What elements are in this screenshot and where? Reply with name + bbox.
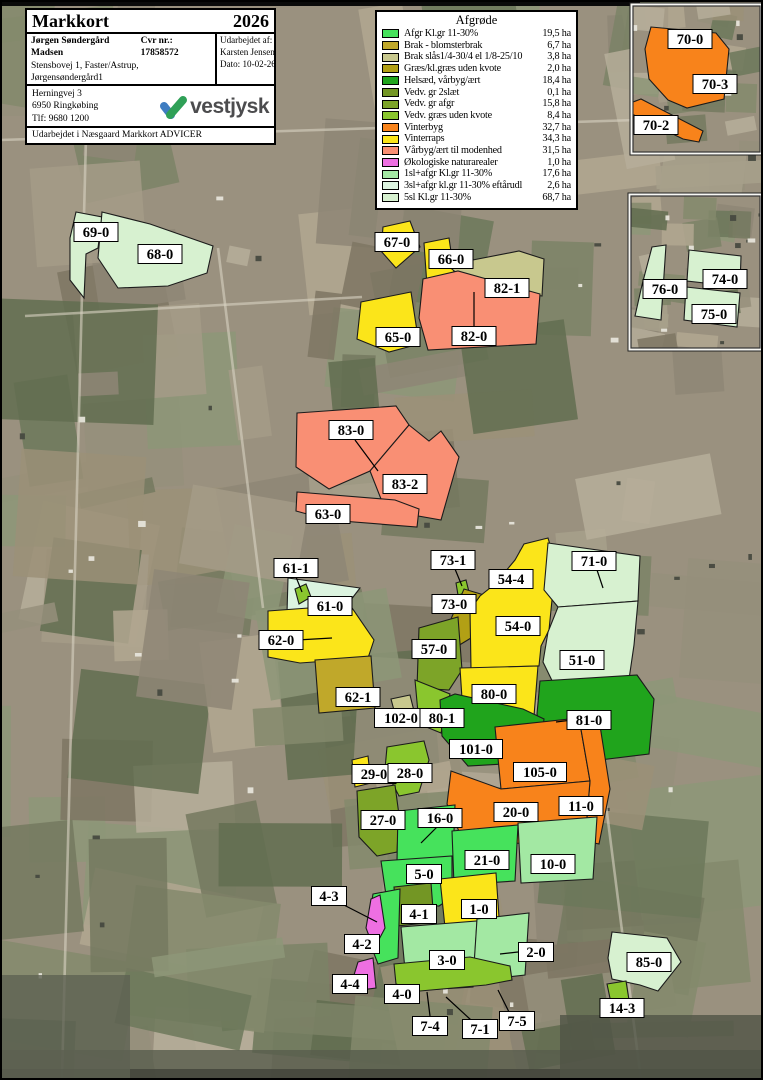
svg-text:61-0: 61-0	[317, 599, 344, 615]
legend-swatch	[382, 146, 399, 155]
svg-text:21-0: 21-0	[474, 853, 501, 869]
svg-text:14-3: 14-3	[609, 1001, 636, 1017]
svg-text:20-0: 20-0	[503, 805, 530, 821]
legend-area: 0,1 ha	[537, 87, 571, 99]
field-label-82-1: 82-1	[485, 279, 529, 298]
aerial-building	[100, 922, 105, 927]
svg-text:83-0: 83-0	[338, 423, 365, 439]
field-label-67-0: 67-0	[375, 233, 419, 252]
svg-text:82-0: 82-0	[461, 329, 488, 345]
svg-text:75-0: 75-0	[701, 307, 728, 323]
legend-label: Helsæd, vårbyg/ært	[404, 75, 537, 87]
field-label-73-0: 73-0	[432, 595, 476, 614]
legend-swatch	[382, 53, 399, 62]
legend-label: 3sl+afgr kl.gr 11-30% eftårudl	[404, 180, 537, 192]
svg-text:1-0: 1-0	[469, 902, 488, 918]
legend-area: 6,7 ha	[537, 40, 571, 52]
field-label-11-0: 11-0	[559, 797, 603, 816]
legend-label: Vinterbyg	[404, 122, 537, 134]
field-label-61-1: 61-1	[274, 559, 318, 578]
aerial-building	[664, 106, 669, 111]
svg-text:7-5: 7-5	[507, 1014, 526, 1030]
prepared-by-name: Karsten Jensen	[220, 47, 271, 59]
field-label-63-0: 63-0	[306, 505, 350, 524]
field-label-3-0: 3-0	[430, 951, 465, 970]
legend-item-sl5: 5sl Kl.gr 11-30%68,7 ha	[382, 192, 571, 204]
svg-text:11-0: 11-0	[568, 799, 594, 815]
inset-map-2: 76-074-075-0	[614, 193, 763, 359]
field-label-16-0: 16-0	[418, 809, 462, 828]
field-label-7-5: 7-5	[500, 1012, 535, 1031]
svg-text:63-0: 63-0	[315, 507, 342, 523]
svg-text:10-0: 10-0	[540, 857, 567, 873]
legend-area: 18,4 ha	[537, 75, 571, 87]
aerial-building	[209, 406, 212, 411]
svg-text:5-0: 5-0	[414, 867, 433, 883]
field-label-4-0: 4-0	[385, 985, 420, 1004]
office-block: Herningvej 3 6950 Ringkøbing Tlf: 9680 1…	[25, 84, 276, 145]
svg-text:83-2: 83-2	[392, 477, 419, 493]
aerial-building	[616, 481, 620, 485]
field-label-82-0: 82-0	[452, 327, 496, 346]
aerial-building	[443, 989, 448, 994]
field-label-73-1: 73-1	[431, 551, 475, 570]
svg-text:54-4: 54-4	[498, 572, 525, 588]
svg-text:71-0: 71-0	[581, 554, 608, 570]
owner-address: Stensbovej 1, Faster/Astrup, Jørgensønde…	[31, 60, 211, 85]
aerial-building	[637, 629, 645, 634]
aerial-building	[665, 215, 669, 220]
field-label-66-0: 66-0	[429, 250, 473, 269]
svg-text:66-0: 66-0	[438, 252, 465, 268]
field-label-70-2: 70-2	[634, 116, 678, 135]
legend-item-oko: Økologiske naturarealer1,0 ha	[382, 157, 571, 169]
aerial-building	[237, 634, 241, 637]
legend-label: Vedv. græs uden kvote	[404, 110, 537, 122]
svg-text:70-3: 70-3	[702, 77, 729, 93]
aerial-dark-area	[0, 975, 130, 1080]
aerial-building	[476, 526, 483, 529]
legend-swatch	[382, 158, 399, 167]
aerial-patch	[0, 820, 84, 948]
legend-area: 8,4 ha	[537, 110, 571, 122]
legend-label: 5sl Kl.gr 11-30%	[404, 192, 537, 204]
field-label-69-0: 69-0	[74, 223, 118, 242]
svg-text:67-0: 67-0	[384, 235, 411, 251]
svg-text:82-1: 82-1	[494, 281, 521, 297]
field-label-51-0: 51-0	[560, 651, 604, 670]
field-label-27-0: 27-0	[361, 811, 405, 830]
legend-item-vinterraps: Vinterraps34,3 ha	[382, 133, 571, 145]
aerial-building	[748, 238, 756, 242]
svg-text:74-0: 74-0	[712, 272, 739, 288]
aerial-building	[447, 1009, 453, 1015]
field-label-7-1: 7-1	[463, 1020, 498, 1039]
svg-text:81-0: 81-0	[576, 713, 603, 729]
legend-item-brak_blomster: Brak - blomsterbrak6,7 ha	[382, 40, 571, 52]
aerial-building	[135, 653, 142, 657]
svg-text:80-0: 80-0	[481, 687, 508, 703]
field-label-4-4: 4-4	[333, 975, 368, 994]
legend-item-sl1: 1sl+afgr Kl.gr 11-30%17,6 ha	[382, 168, 571, 180]
field-label-83-2: 83-2	[383, 475, 427, 494]
svg-text:4-4: 4-4	[340, 977, 359, 993]
legend-area: 17,6 ha	[537, 168, 571, 180]
inset-map-1: 70-070-370-2	[617, 0, 763, 158]
field-label-57-0: 57-0	[412, 640, 456, 659]
office-city: 6950 Ringkøbing	[32, 100, 98, 112]
legend-area: 1,0 ha	[537, 157, 571, 169]
aerial-building	[594, 243, 601, 246]
legend-item-vedv_graes: Vedv. græs uden kvote8,4 ha	[382, 110, 571, 122]
field-label-10-0: 10-0	[531, 855, 575, 874]
legend-area: 31,5 ha	[537, 145, 571, 157]
legend-item-helsaed: Helsæd, vårbyg/ært18,4 ha	[382, 75, 571, 87]
legend-label: Brak slås1/4-30/4 el 1/8-25/10	[404, 51, 537, 63]
field-label-28-0: 28-0	[388, 764, 432, 783]
field-label-83-0: 83-0	[329, 421, 373, 440]
map-year: 2026	[233, 10, 269, 32]
office-address: Herningvej 3 6950 Ringkøbing Tlf: 9680 1…	[32, 88, 98, 125]
field-label-4-2: 4-2	[345, 935, 380, 954]
svg-text:4-3: 4-3	[319, 889, 338, 905]
svg-text:70-0: 70-0	[677, 32, 704, 48]
aerial-building	[424, 523, 430, 528]
vestjysk-logo-text: vestjysk	[190, 93, 269, 120]
legend-item-vaarbyg: Vårbyg/ært til modenhed31,5 ha	[382, 145, 571, 157]
legend-area: 2,6 ha	[537, 180, 571, 192]
aerial-building	[674, 577, 680, 580]
aerial-patch	[136, 569, 250, 710]
prepared-by-label: Udarbejdet af:	[220, 35, 271, 47]
aerial-building	[20, 433, 25, 439]
svg-text:73-0: 73-0	[441, 597, 468, 613]
field-label-2-0: 2-0	[519, 943, 554, 962]
svg-text:85-0: 85-0	[636, 955, 663, 971]
legend-area: 32,7 ha	[537, 122, 571, 134]
field-label-85-0: 85-0	[627, 953, 671, 972]
field-label-80-1: 80-1	[420, 709, 464, 728]
aerial-building	[232, 679, 239, 683]
legend-swatch	[382, 29, 399, 38]
field-label-81-0: 81-0	[567, 711, 611, 730]
aerial-patch	[13, 449, 147, 585]
field-label-105-0: 105-0	[514, 763, 567, 782]
legend-label: Vinterraps	[404, 133, 537, 145]
field-label-70-3: 70-3	[693, 75, 737, 94]
svg-text:16-0: 16-0	[427, 811, 454, 827]
legend-item-afgr: Afgr Kl.gr 11-30%19,5 ha	[382, 28, 571, 40]
aerial-building	[748, 155, 756, 161]
inset-content: 70-070-370-2	[617, 0, 763, 158]
field-label-54-0: 54-0	[496, 617, 540, 636]
svg-text:27-0: 27-0	[370, 813, 397, 829]
field-label-14-3: 14-3	[600, 999, 644, 1018]
aerial-building	[138, 521, 146, 527]
legend-item-vedv2: Vedv. gr 2slæt0,1 ha	[382, 87, 571, 99]
field-label-71-0: 71-0	[572, 552, 616, 571]
svg-text:101-0: 101-0	[459, 742, 493, 758]
office-phone: Tlf: 9680 1200	[32, 113, 98, 125]
aerial-patch	[679, 558, 763, 688]
svg-text:69-0: 69-0	[83, 225, 110, 241]
legend-area: 19,5 ha	[537, 28, 571, 40]
legend-list: Afgr Kl.gr 11-30%19,5 haBrak - blomsterb…	[382, 28, 571, 204]
office-street: Herningvej 3	[32, 88, 98, 100]
legend-swatch	[382, 170, 399, 179]
aerial-patch	[683, 197, 717, 221]
svg-text:61-1: 61-1	[283, 561, 310, 577]
legend-swatch	[382, 193, 399, 202]
field-label-76-0: 76-0	[643, 280, 687, 299]
aerial-building	[89, 556, 95, 561]
aerial-building	[748, 554, 752, 560]
aerial-building	[69, 570, 73, 573]
owner-cvr: Cvr nr.: 17858572	[141, 35, 211, 60]
svg-text:7-1: 7-1	[470, 1022, 489, 1038]
vestjysk-logo-icon	[158, 95, 188, 119]
field-label-65-0: 65-0	[376, 328, 420, 347]
svg-text:4-1: 4-1	[409, 907, 428, 923]
legend-label: Vårbyg/ært til modenhed	[404, 145, 537, 157]
legend-label: Vedv. gr 2slæt	[404, 87, 537, 99]
aerial-building	[248, 787, 254, 793]
legend: Afgrøde Afgr Kl.gr 11-30%19,5 haBrak - b…	[375, 10, 578, 210]
legend-label: Brak - blomsterbrak	[404, 40, 537, 52]
legend-area: 3,8 ha	[537, 51, 571, 63]
legend-item-vinterbyg: Vinterbyg32,7 ha	[382, 122, 571, 134]
legend-item-brak_slaas: Brak slås1/4-30/4 el 1/8-25/103,8 ha	[382, 51, 571, 63]
legend-label: Økologiske naturarealer	[404, 157, 537, 169]
aerial-patch	[219, 823, 343, 887]
svg-text:68-0: 68-0	[147, 247, 174, 263]
legend-swatch	[382, 111, 399, 120]
field-label-61-0: 61-0	[308, 597, 352, 616]
svg-text:62-0: 62-0	[268, 633, 295, 649]
legend-title: Afgrøde	[382, 13, 571, 28]
svg-text:51-0: 51-0	[569, 653, 596, 669]
legend-swatch	[382, 100, 399, 109]
aerial-building	[730, 215, 736, 221]
svg-text:2-0: 2-0	[526, 945, 545, 961]
page-title: Markkort	[32, 10, 109, 32]
aerial-building	[216, 197, 223, 201]
field-label-80-0: 80-0	[472, 685, 516, 704]
credit-line: Udarbejdet i Næsgaard Markkort ADVICER	[27, 126, 274, 143]
map-date: Dato: 10-02-26	[220, 59, 271, 71]
aerial-patch	[89, 838, 169, 972]
legend-swatch	[382, 135, 399, 144]
aerial-building	[735, 243, 741, 248]
svg-text:54-0: 54-0	[505, 619, 532, 635]
legend-area: 2,0 ha	[537, 63, 571, 75]
legend-label: Græs/kl.græs uden kvote	[404, 63, 537, 75]
svg-text:105-0: 105-0	[523, 765, 557, 781]
legend-swatch	[382, 76, 399, 85]
aerial-building	[35, 875, 39, 878]
aerial-building	[157, 689, 162, 695]
legend-item-sl3: 3sl+afgr kl.gr 11-30% eftårudl2,6 ha	[382, 180, 571, 192]
field-label-62-0: 62-0	[259, 631, 303, 650]
legend-swatch	[382, 123, 399, 132]
svg-text:29-0: 29-0	[361, 767, 388, 783]
aerial-building	[633, 25, 637, 31]
svg-text:3-0: 3-0	[437, 953, 456, 969]
legend-swatch	[382, 181, 399, 190]
svg-text:102-0: 102-0	[384, 711, 418, 727]
field-label-74-0: 74-0	[703, 270, 747, 289]
aerial-building	[737, 34, 743, 40]
field-label-75-0: 75-0	[692, 305, 736, 324]
legend-item-graes_kvote: Græs/kl.græs uden kvote2,0 ha	[382, 63, 571, 75]
svg-text:57-0: 57-0	[421, 642, 448, 658]
svg-text:28-0: 28-0	[397, 766, 424, 782]
legend-swatch	[382, 41, 399, 50]
field-label-101-0: 101-0	[450, 740, 503, 759]
field-label-7-4: 7-4	[413, 1017, 448, 1036]
field-label-4-1: 4-1	[402, 905, 437, 924]
field-label-5-0: 5-0	[407, 865, 442, 884]
aerial-building	[93, 835, 100, 839]
aerial-patch	[728, 210, 751, 238]
owner-name: Jørgen Søndergård Madsen	[31, 35, 141, 60]
aerial-building	[661, 329, 667, 332]
field-label-21-0: 21-0	[465, 851, 509, 870]
svg-text:4-2: 4-2	[352, 937, 371, 953]
field-label-20-0: 20-0	[494, 803, 538, 822]
aerial-building	[720, 341, 724, 344]
aerial-building	[256, 256, 262, 261]
aerial-building	[510, 1002, 513, 1007]
legend-label: Afgr Kl.gr 11-30%	[404, 28, 537, 40]
aerial-dark-area	[560, 1015, 763, 1080]
svg-text:70-2: 70-2	[643, 118, 670, 134]
legend-area: 68,7 ha	[537, 192, 571, 204]
legend-label: 1sl+afgr Kl.gr 11-30%	[404, 168, 537, 180]
aerial-building	[736, 21, 739, 26]
aerial-building	[509, 522, 514, 525]
inset-content: 76-074-075-0	[614, 195, 763, 359]
field-label-54-4: 54-4	[489, 570, 533, 589]
legend-swatch	[382, 88, 399, 97]
aerial-patch	[78, 372, 119, 397]
legend-area: 15,8 ha	[537, 98, 571, 110]
field-label-62-1: 62-1	[336, 688, 380, 707]
field-label-1-0: 1-0	[462, 900, 497, 919]
aerial-building	[611, 338, 619, 343]
field-label-70-0: 70-0	[668, 30, 712, 49]
legend-item-vedv_afgr: Vedv. gr afgr15,8 ha	[382, 98, 571, 110]
legend-area: 34,3 ha	[537, 133, 571, 145]
legend-label: Vedv. gr afgr	[404, 98, 537, 110]
svg-text:62-1: 62-1	[345, 690, 372, 706]
field-label-4-3: 4-3	[312, 887, 347, 906]
field-label-68-0: 68-0	[138, 245, 182, 264]
aerial-building	[669, 787, 673, 792]
svg-text:4-0: 4-0	[392, 987, 411, 1003]
svg-text:65-0: 65-0	[385, 330, 412, 346]
svg-text:80-1: 80-1	[429, 711, 456, 727]
aerial-building	[709, 564, 715, 568]
aerial-building	[578, 284, 582, 287]
vestjysk-logo: vestjysk	[158, 93, 269, 120]
svg-text:73-1: 73-1	[440, 553, 467, 569]
svg-text:7-4: 7-4	[420, 1019, 439, 1035]
svg-text:76-0: 76-0	[652, 282, 679, 298]
legend-swatch	[382, 64, 399, 73]
